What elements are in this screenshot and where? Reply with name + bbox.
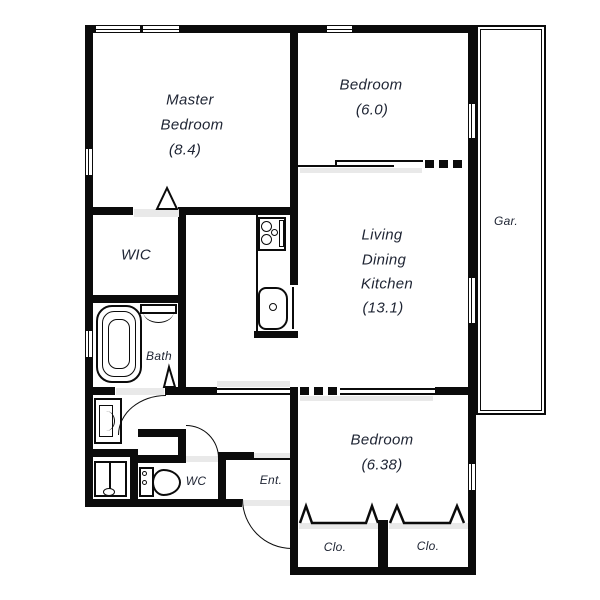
room-label-closet-left: Clo. [324, 540, 347, 554]
window [469, 104, 475, 138]
closet-folding-door-icon [390, 506, 464, 523]
sliding-door-bedroom-bottom-a [340, 388, 437, 390]
closet-folding-door-icon [300, 506, 378, 523]
wall-outer-left [85, 25, 93, 507]
room-label-entrance: Ent. [260, 473, 283, 487]
room-label-ldk-line2: Dining [362, 252, 406, 269]
bathtub-basin [108, 319, 130, 369]
stove-burner-small [271, 229, 278, 236]
dashed-wall [300, 387, 309, 395]
opening-ldk-hall-b [217, 393, 290, 395]
door-shade-master [134, 209, 179, 217]
floor-plan: Master Bedroom (8.4) Bedroom (6.0) Livin… [0, 0, 600, 600]
door-shade-bedroom-bottom [300, 396, 433, 401]
room-label-bedroom-top: Bedroom [340, 77, 403, 94]
toilet-tank-knob [142, 480, 147, 485]
window-frame-line [471, 104, 472, 138]
sliding-door-bedroom-top-b [335, 160, 423, 162]
wall-wic-bath-right [178, 207, 186, 395]
wall-wc-top [130, 455, 186, 463]
counter-sink-right-edge [292, 287, 294, 329]
dashed-wall [439, 160, 448, 168]
room-label-master-line2: Bedroom [161, 117, 224, 134]
opening-ldk-hall-a [217, 388, 290, 390]
window-frame-line [88, 149, 89, 175]
room-label-master-line1: Master [166, 92, 214, 109]
door-leaf-bath-icon [164, 367, 175, 387]
door-leaf-master-icon [157, 188, 177, 209]
entrance-step-shade [254, 453, 290, 458]
washer-pan-drain [103, 488, 115, 496]
closet-left-shade [299, 523, 378, 529]
room-label-master-area: (8.4) [169, 142, 201, 159]
wall-bottom-bedroom [290, 567, 476, 575]
sliding-door-bedroom-top-tick [335, 160, 337, 167]
wall-closet-divider [378, 520, 388, 567]
wall-wc-lobby-v [178, 429, 186, 457]
bath-counter-curve [143, 310, 174, 323]
wall-wc-right [218, 455, 226, 507]
entrance-threshold-line [254, 458, 290, 460]
sink-faucet [269, 303, 277, 311]
room-label-bedroom-bottom: Bedroom [351, 432, 414, 449]
sliding-door-bedroom-top-a [298, 165, 394, 167]
wall-master-bedroom-divider [290, 25, 298, 215]
room-label-garden: Gar. [494, 214, 518, 228]
wall-master-bottom-b [180, 207, 298, 215]
window-frame-line [88, 331, 89, 357]
washer-pan-line [109, 463, 111, 491]
door-shade-washroom [116, 388, 164, 395]
dashed-wall [453, 160, 462, 168]
stove-grill [279, 220, 284, 247]
room-label-wic: WIC [121, 247, 151, 264]
dashed-wall [314, 387, 323, 395]
room-label-ldk-line1: Living [362, 227, 403, 244]
window-frame-line [327, 29, 352, 30]
wall-master-bottom-a [85, 207, 133, 215]
room-label-ldk-area: (13.1) [363, 300, 404, 317]
room-label-closet-right: Clo. [417, 539, 440, 553]
door-arc-washroom [118, 395, 166, 435]
window [86, 149, 92, 175]
wall-bedroom-top-solid [435, 387, 468, 395]
wall-counter-bottom [254, 331, 298, 338]
wall-kitchen-counter-right [290, 215, 298, 285]
toilet-bowl-icon [152, 469, 181, 496]
window-frame-line [471, 464, 472, 490]
door-shade-bedroom-top [300, 168, 422, 173]
dashed-wall [328, 387, 337, 395]
window-frame-line [143, 29, 179, 30]
room-label-wc: WC [186, 474, 207, 488]
window-frame-line [471, 278, 472, 323]
window [469, 464, 475, 490]
wall-wic-bottom [85, 295, 186, 303]
window [86, 331, 92, 357]
room-label-ldk-line3: Kitchen [361, 276, 413, 293]
window-frame-line [96, 29, 140, 30]
closet-right-shade [389, 523, 468, 529]
stove-burner [261, 234, 272, 245]
door-arc-wc [186, 425, 219, 458]
room-label-bedroom-top-area: (6.0) [356, 102, 388, 119]
toilet-tank-knob [142, 471, 147, 476]
room-label-bedroom-bottom-area: (6.38) [362, 457, 403, 474]
dashed-wall [425, 160, 434, 168]
door-shade-ldk-hall [217, 381, 290, 387]
window [469, 278, 475, 323]
wall-hall-south [177, 387, 217, 395]
door-arc-entrance [242, 499, 292, 549]
wall-entrance-top [218, 452, 254, 460]
room-label-bath: Bath [146, 349, 172, 363]
sliding-door-bedroom-bottom-b [340, 393, 437, 395]
wall-bath-bottom-a [85, 387, 115, 395]
